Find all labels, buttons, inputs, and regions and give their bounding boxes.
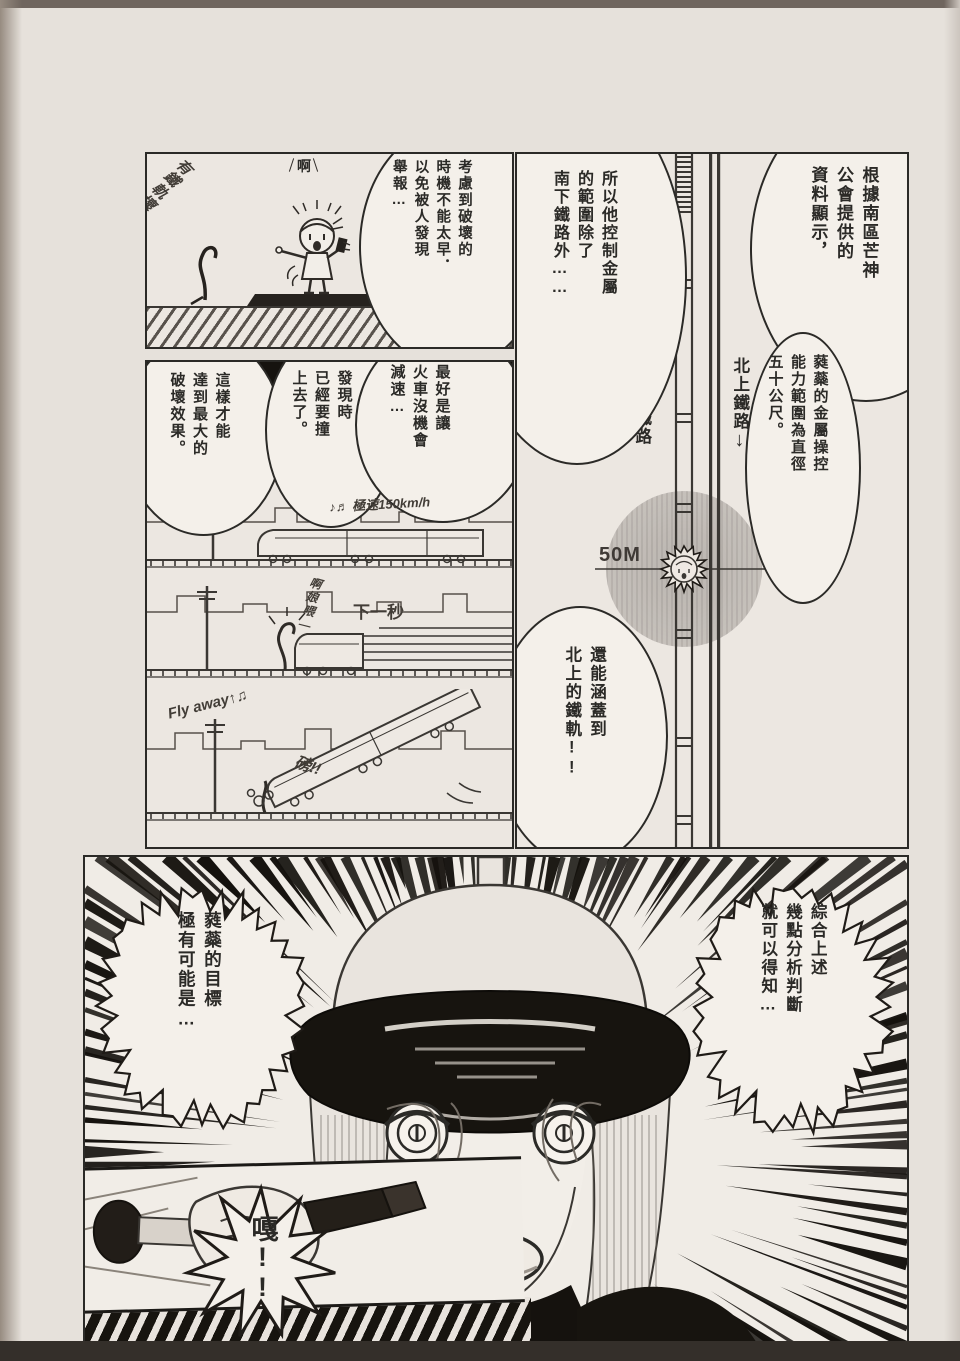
speech-text: 根據南區芒神 公會提供的 資料顯示，: [805, 166, 882, 361]
scan-edge-left: [0, 0, 22, 1361]
scan-edge-top: [0, 0, 960, 8]
caption-next-second: 下一秒: [353, 598, 404, 623]
speech-text: 蕤蘂的金屬操控 能力範圍為直徑 五十公尺。: [763, 354, 831, 586]
sfx-shout: 嘎!!: [242, 1215, 283, 1319]
scan-edge-right: [944, 0, 960, 1361]
shout-burst-bubble: 嘎!!: [180, 1179, 342, 1345]
speech-text: 所以他控制金屬 的範圍除了 南下鐵路外……: [547, 170, 619, 378]
speech-text: 蕤蘂的目標 極有可能是…: [173, 911, 226, 1103]
panel-survey: 有鐵軌壞了 啊 考慮到破壞的 時機不能太早． 以免被人發現 舉報…: [145, 152, 514, 349]
speech-text: 最好是讓 火車沒機會 減速…: [385, 364, 453, 504]
panel-map: ↑ 南下鐵路 北上鐵路 ↓ 50M 根據南區芒神 公會提供的 資料顯示， 蕤蘂的…: [515, 152, 909, 849]
spiky-speech-bubble: 綜合上述 幾點分析判斷 就可以得知…: [685, 875, 901, 1139]
speech-text: 綜合上述 幾點分析判斷 就可以得知…: [755, 903, 829, 1115]
speech-text: 還能涵蓋到 北上的鐵軌!!: [559, 646, 609, 834]
scene-rail-bends: [147, 574, 512, 689]
exclaim-text: 啊: [297, 158, 311, 174]
range-marker-face: [656, 541, 712, 597]
speech-text: 考慮到破壞的 時機不能太早． 以免被人發現 舉報…: [387, 159, 474, 331]
panel-plan: 這樣才能 達到最大的 破壞效果。 發現時 已經要撞 上去了。 最好是讓 火車沒機…: [145, 360, 514, 849]
panel-reveal: 綜合上述 幾點分析判斷 就可以得知… 蕤蘂的目標 極有可能是… 嘎!!: [83, 855, 909, 1349]
speech-text: 這樣才能 達到最大的 破壞效果。: [165, 372, 233, 510]
manga-page-scan: 有鐵軌壞了 啊 考慮到破壞的 時機不能太早． 以免被人發現 舉報…: [0, 0, 960, 1361]
right-eye: [532, 1103, 596, 1163]
speech-text: 發現時 已經要撞 上去了。: [287, 370, 355, 502]
exclaim-mark: 啊: [297, 156, 311, 176]
spiky-speech-bubble: 蕤蘂的目標 極有可能是…: [89, 877, 315, 1135]
arrow-down-icon: ↓: [734, 431, 744, 449]
label-radius: 50M: [599, 544, 641, 567]
scan-edge-bottom: [0, 1341, 960, 1361]
